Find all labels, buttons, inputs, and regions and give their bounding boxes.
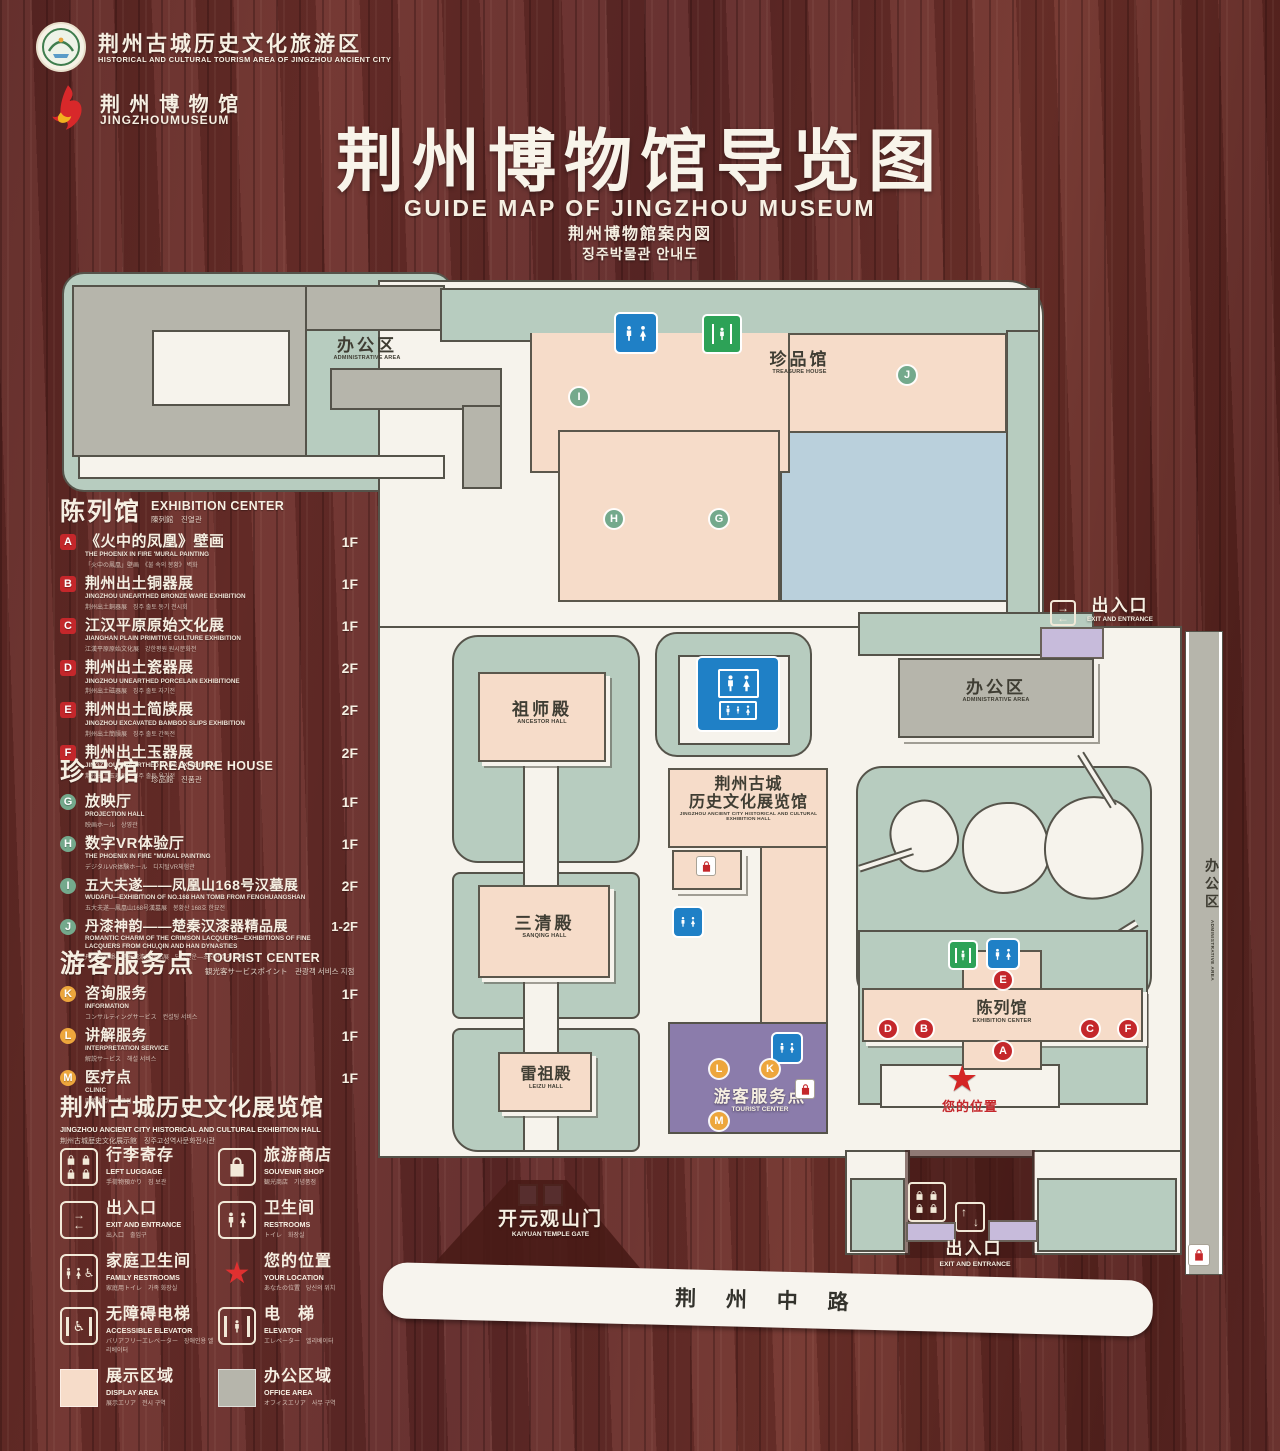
tourism-area-name-en: HISTORICAL AND CULTURAL TOURISM AREA OF … (98, 55, 391, 64)
souvenir-shop-icon (795, 1079, 815, 1099)
restrooms-icon (773, 1034, 801, 1062)
treasure-house-label: 珍品馆 TREASURE HOUSE (742, 350, 857, 375)
legend-item: A《火中的凤凰》壁画THE PHOENIX IN FIRE 'MURAL PAI… (60, 533, 360, 569)
legend-item: B荆州出土铜器展JINGZHOU UNEARTHED BRONZE WARE E… (60, 575, 360, 611)
nw-admin-wing-top (305, 285, 445, 331)
nw-admin-wing-column (462, 405, 502, 489)
garden-pond (962, 802, 1050, 894)
restrooms-icon (988, 940, 1018, 968)
map-marker: D (879, 1020, 897, 1038)
elevator-icon (950, 942, 976, 968)
your-location-icon: ★ (218, 1254, 256, 1292)
lake (780, 430, 1008, 602)
legend-hall-title: 荆州古城历史文化展览馆 JINGZHOU ANCIENT CITY HISTOR… (60, 1088, 360, 1146)
map-marker: C (1081, 1020, 1099, 1038)
legend-exhibition-header: 陈列馆 EXHIBITION CENTER 陳列館 진열관 (60, 500, 360, 525)
map-marker: J (898, 366, 916, 384)
legend-display-area: 展示区域DISPLAY AREA展示エリア 전시 구역 (60, 1369, 218, 1407)
map-marker: F (1119, 1020, 1137, 1038)
legend-accessible-elevator: ♿ 无障碍电梯ACCESSIBLE ELEVATORバリアフリーエレベーター 장… (60, 1307, 218, 1354)
restrooms-icon (218, 1201, 256, 1239)
ne-gate-building (1040, 627, 1104, 659)
office-area-swatch (218, 1369, 256, 1407)
icon-legend: 行李寄存LEFT LUGGAGE手荷物預かり 짐 보관 旅游商店SOUVENIR… (60, 1148, 362, 1407)
museum-phoenix-icon (44, 82, 92, 134)
restrooms-icon (698, 658, 778, 730)
restrooms-icon (674, 908, 702, 936)
nw-corridor (78, 455, 445, 479)
your-location-star-icon: ★ (946, 1058, 978, 1100)
road-label: 荆 州 中 路 (675, 1282, 861, 1317)
legend-exhibition-center: 陈列馆 EXHIBITION CENTER 陳列館 진열관 A《火中的凤凰》壁画… (60, 500, 360, 786)
legend-restrooms: 卫生间RESTROOMSトイレ 화장실 (218, 1201, 362, 1239)
south-exit-green-right (1037, 1178, 1177, 1252)
legend-item: D荆州出土瓷器展JINGZHOU UNEARTHED PORCELAIN EXH… (60, 659, 360, 695)
history-exhibition-hall-label: 荆州古城 历史文化展览馆 JINGZHOU ANCIENT CITY HISTO… (676, 776, 821, 823)
legend-tourist-header: 游客服务点 TOURIST CENTER 観光客サービスポイント 관광객 서비스… (60, 952, 360, 977)
legend-item: G放映厅PROJECTION HALL映画ホール 상영관1F (60, 793, 360, 829)
legend-item: L讲解服务INTERPRETATION SERVICE解説サービス 해설 서비스… (60, 1027, 360, 1063)
legend-exit-entrance: →← 出入口EXIT AND ENTRANCE出入口 출입구 (60, 1201, 218, 1239)
legend-item: I五大夫遂——凤凰山168号汉墓展WUDAFU—EXHIBITION OF NO… (60, 877, 360, 912)
elevator-icon (704, 316, 740, 352)
left-luggage-icon (60, 1148, 98, 1186)
legend-family-restrooms: ♿ 家庭卫生间FAMILY RESTROOMS家庭用トイレ 가족 화장실 (60, 1254, 218, 1292)
nw-admin-courtyard (152, 330, 290, 406)
ne-admin-label: 办公区 ADMINISTRATIVE AREA (936, 678, 1056, 703)
souvenir-shop-icon (1188, 1244, 1210, 1266)
page-title-en: GUIDE MAP OF JINGZHOU MUSEUM (250, 196, 1030, 221)
your-location-label: 您的位置 (928, 1096, 1012, 1115)
accessible-elevator-icon: ♿ (60, 1307, 98, 1345)
legend-item: K咨询服务INFORMATIONコンサルティングサービス 컨설팅 서비스1F (60, 985, 360, 1021)
history-exhibition-hall-wing (760, 846, 828, 1024)
tourism-area-logo-icon (41, 27, 81, 67)
leizu-hall-label: 雷祖殿 LEIZU HALL (496, 1066, 596, 1090)
legend-office-area: 办公区域OFFICE AREAオフィスエリア 사무 구역 (218, 1369, 362, 1407)
restrooms-sign (718, 669, 759, 698)
gate-label: 开元观山门 KAIYUAN TEMPLE GATE (483, 1210, 618, 1238)
map-marker: A (994, 1042, 1012, 1060)
ne-exit-label: 出入口 (1080, 597, 1160, 616)
ancestor-hall-label: 祖师殿 ANCESTOR HALL (487, 700, 597, 725)
legend-souvenir-shop: 旅游商店SOUVENIR SHOP観光商店 기념품점 (218, 1148, 362, 1186)
map-marker: L (710, 1060, 728, 1078)
east-admin-strip-label: 办公区 ADMINISTRATIVE AREA (1188, 840, 1220, 1000)
exhibition-center-label: 陈列馆 EXHIBITION CENTER (952, 1000, 1052, 1024)
map-marker: E (994, 971, 1012, 989)
map-marker: M (710, 1112, 728, 1130)
page-title: 荆州博物馆导览图 (250, 106, 1030, 205)
south-exit-green-left (850, 1178, 905, 1252)
family-restrooms-icon: ♿ (60, 1254, 98, 1292)
display-area-swatch (60, 1369, 98, 1407)
museum-name-en: JINGZHOUMUSEUM (100, 113, 229, 127)
legend-elevator: 电 梯ELEVATORエレベーター 엘리베이터 (218, 1307, 362, 1354)
legend-item: C江汉平原原始文化展JIANGHAN PLAIN PRIMITIVE CULTU… (60, 617, 360, 653)
souvenir-shop-icon (218, 1148, 256, 1186)
accessible-elevator-icon: ↑ ↓ (955, 1202, 985, 1232)
legend-treasure-house: 珍品馆 TREASURE HOUSE 珍品館 진품관 G放映厅PROJECTIO… (60, 760, 360, 967)
map-marker: H (605, 510, 623, 528)
map-marker: G (710, 510, 728, 528)
guide-map-poster: 荆州古城历史文化旅游区 HISTORICAL AND CULTURAL TOUR… (0, 0, 1280, 1451)
sanqing-hall-label: 三清殿 SANQING HALL (487, 914, 602, 939)
tourism-area-name: 荆州古城历史文化旅游区 (98, 28, 362, 58)
left-luggage-icon (908, 1182, 946, 1222)
map-marker: K (761, 1060, 779, 1078)
exit-entrance-icon: →← (60, 1201, 98, 1239)
page-title-ko: 징주박물관 안내도 (250, 247, 1030, 262)
legend-treasure-header: 珍品馆 TREASURE HOUSE 珍品館 진품관 (60, 760, 360, 785)
souvenir-shop-icon (696, 856, 716, 876)
legend-left-luggage: 行李寄存LEFT LUGGAGE手荷物預かり 짐 보관 (60, 1148, 218, 1186)
map-marker: B (915, 1020, 933, 1038)
map-marker: I (570, 388, 588, 406)
tourism-area-logo (36, 22, 86, 72)
north-green-east-strip (1006, 330, 1040, 618)
museum-logo (44, 82, 92, 134)
legend-your-location: ★ 您的位置YOUR LOCATIONあなたの位置 당신의 위치 (218, 1254, 362, 1292)
restrooms-icon (616, 314, 656, 352)
ne-exit-label-en: EXIT AND ENTRANCE (1072, 617, 1168, 624)
page-title-ja: 荆州博物館案内図 (250, 226, 1030, 244)
legend-item: E荆州出土简牍展JINGZHOU EXCAVATED BAMBOO SLIPS … (60, 701, 360, 737)
elevator-icon (218, 1307, 256, 1345)
south-exit-label-en: EXIT AND ENTRANCE (914, 1261, 1036, 1268)
nw-admin-wing-bar (330, 368, 502, 410)
south-exit-label: 出入口 (934, 1240, 1014, 1259)
family-restroom-sign (719, 701, 757, 720)
road: 荆 州 中 路 (382, 1262, 1153, 1337)
tourist-center-building (668, 1022, 828, 1134)
treasure-house-wing (558, 430, 780, 602)
nw-admin-label: 办公区 ADMINISTRATIVE AREA (312, 336, 422, 361)
legend-item: H数字VR体验厅THE PHOENIX IN FIRE "MURAL PAINT… (60, 835, 360, 871)
